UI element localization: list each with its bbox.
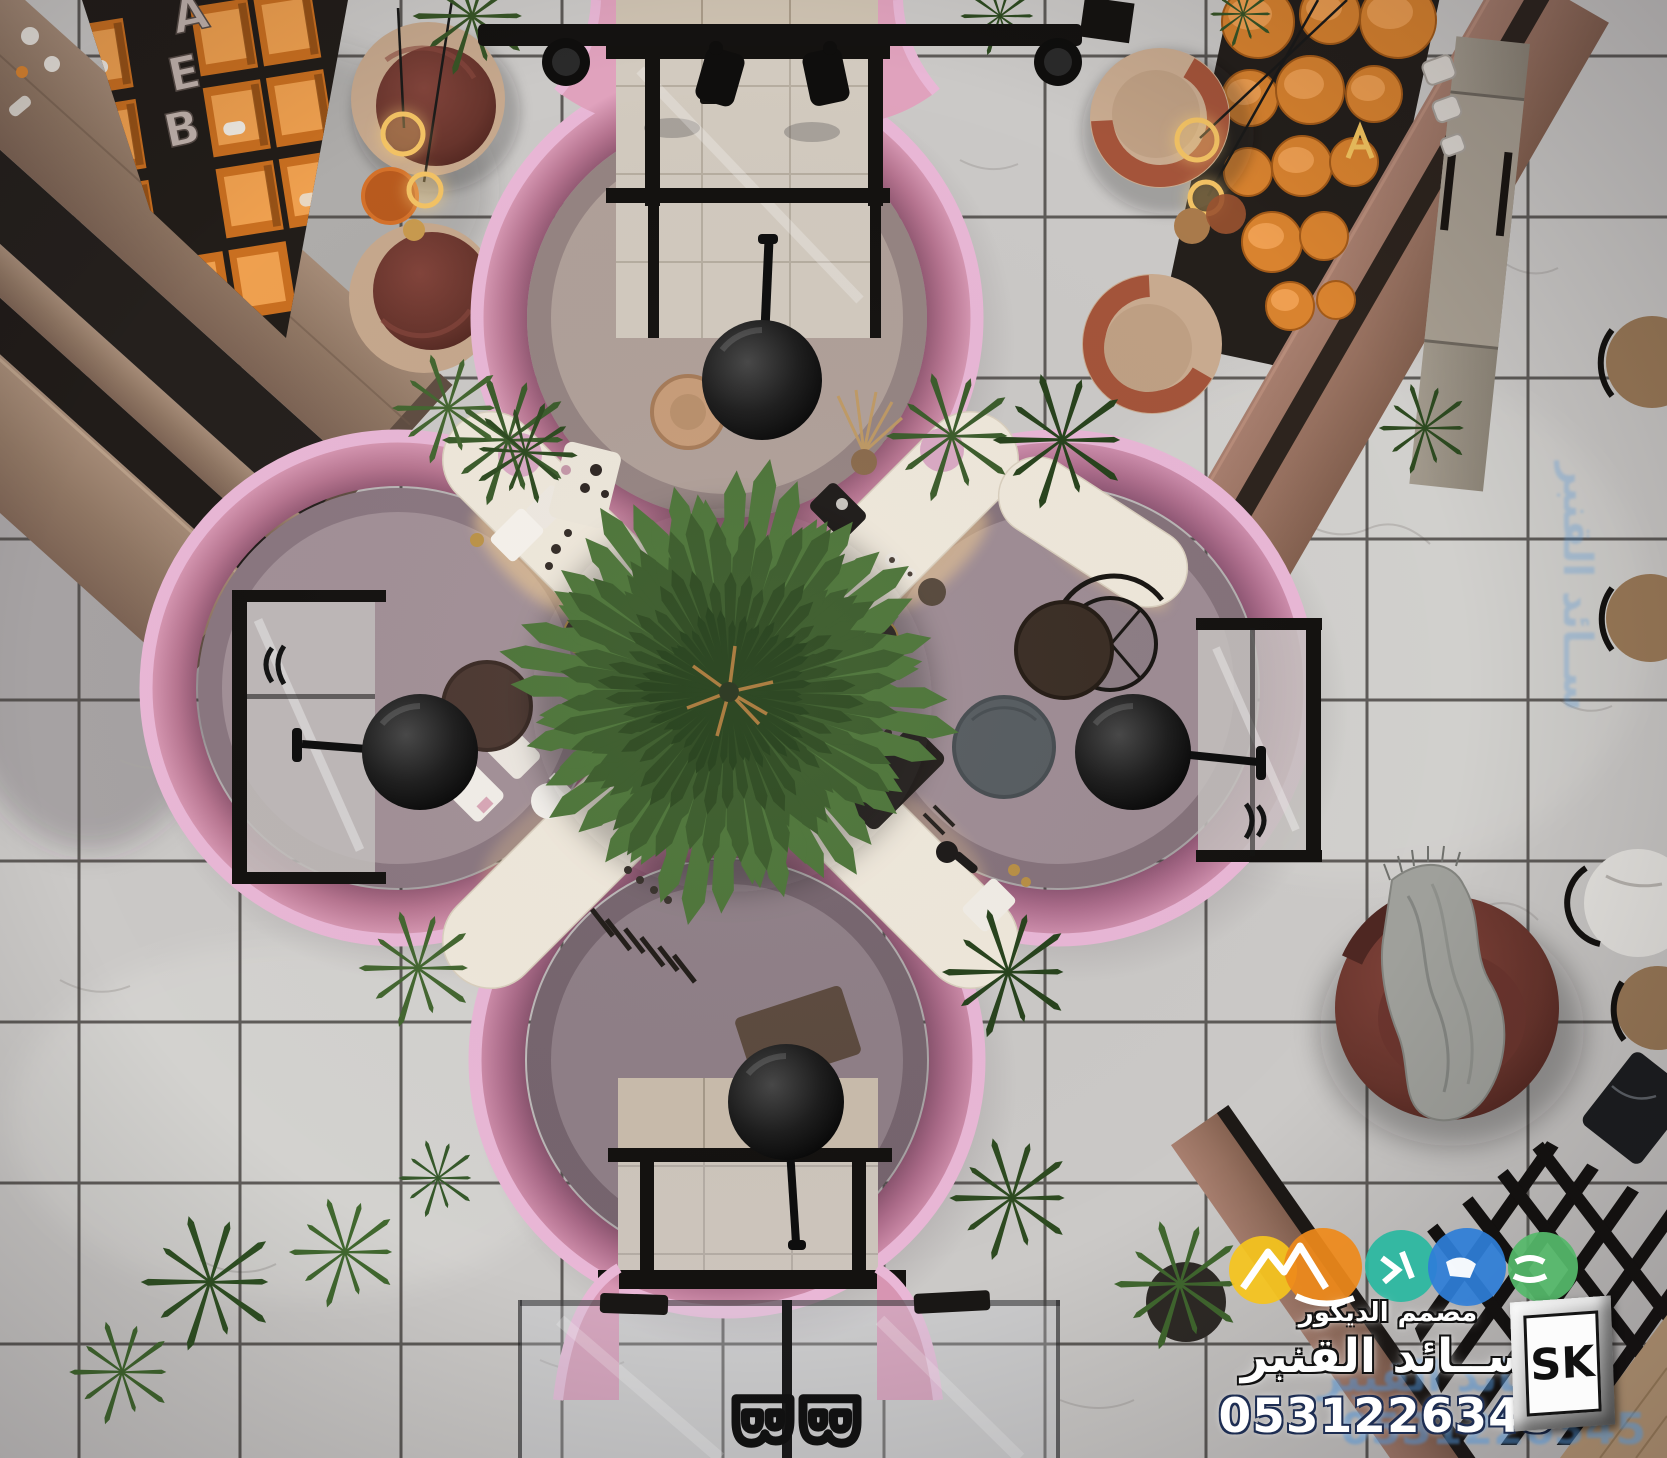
logo-circle-blue	[1428, 1228, 1506, 1306]
logo-circle-green	[1508, 1232, 1578, 1302]
watermark-ghost-vertical: ســائد القنبر	[1554, 462, 1600, 711]
logo-circle-orange	[1284, 1228, 1362, 1306]
sk-logo-badge: SK	[1510, 1296, 1615, 1432]
watermark-phone: 0531226345	[1212, 1392, 1562, 1441]
salon-render: B E A	[0, 0, 1667, 1458]
watermark-tagline: مصمم الديكور	[1238, 1300, 1538, 1327]
logo-circle-teal	[1365, 1230, 1437, 1302]
sk-logo-text: SK	[1523, 1310, 1601, 1416]
watermark-designer-name: ســائد القنبر	[1222, 1332, 1552, 1381]
